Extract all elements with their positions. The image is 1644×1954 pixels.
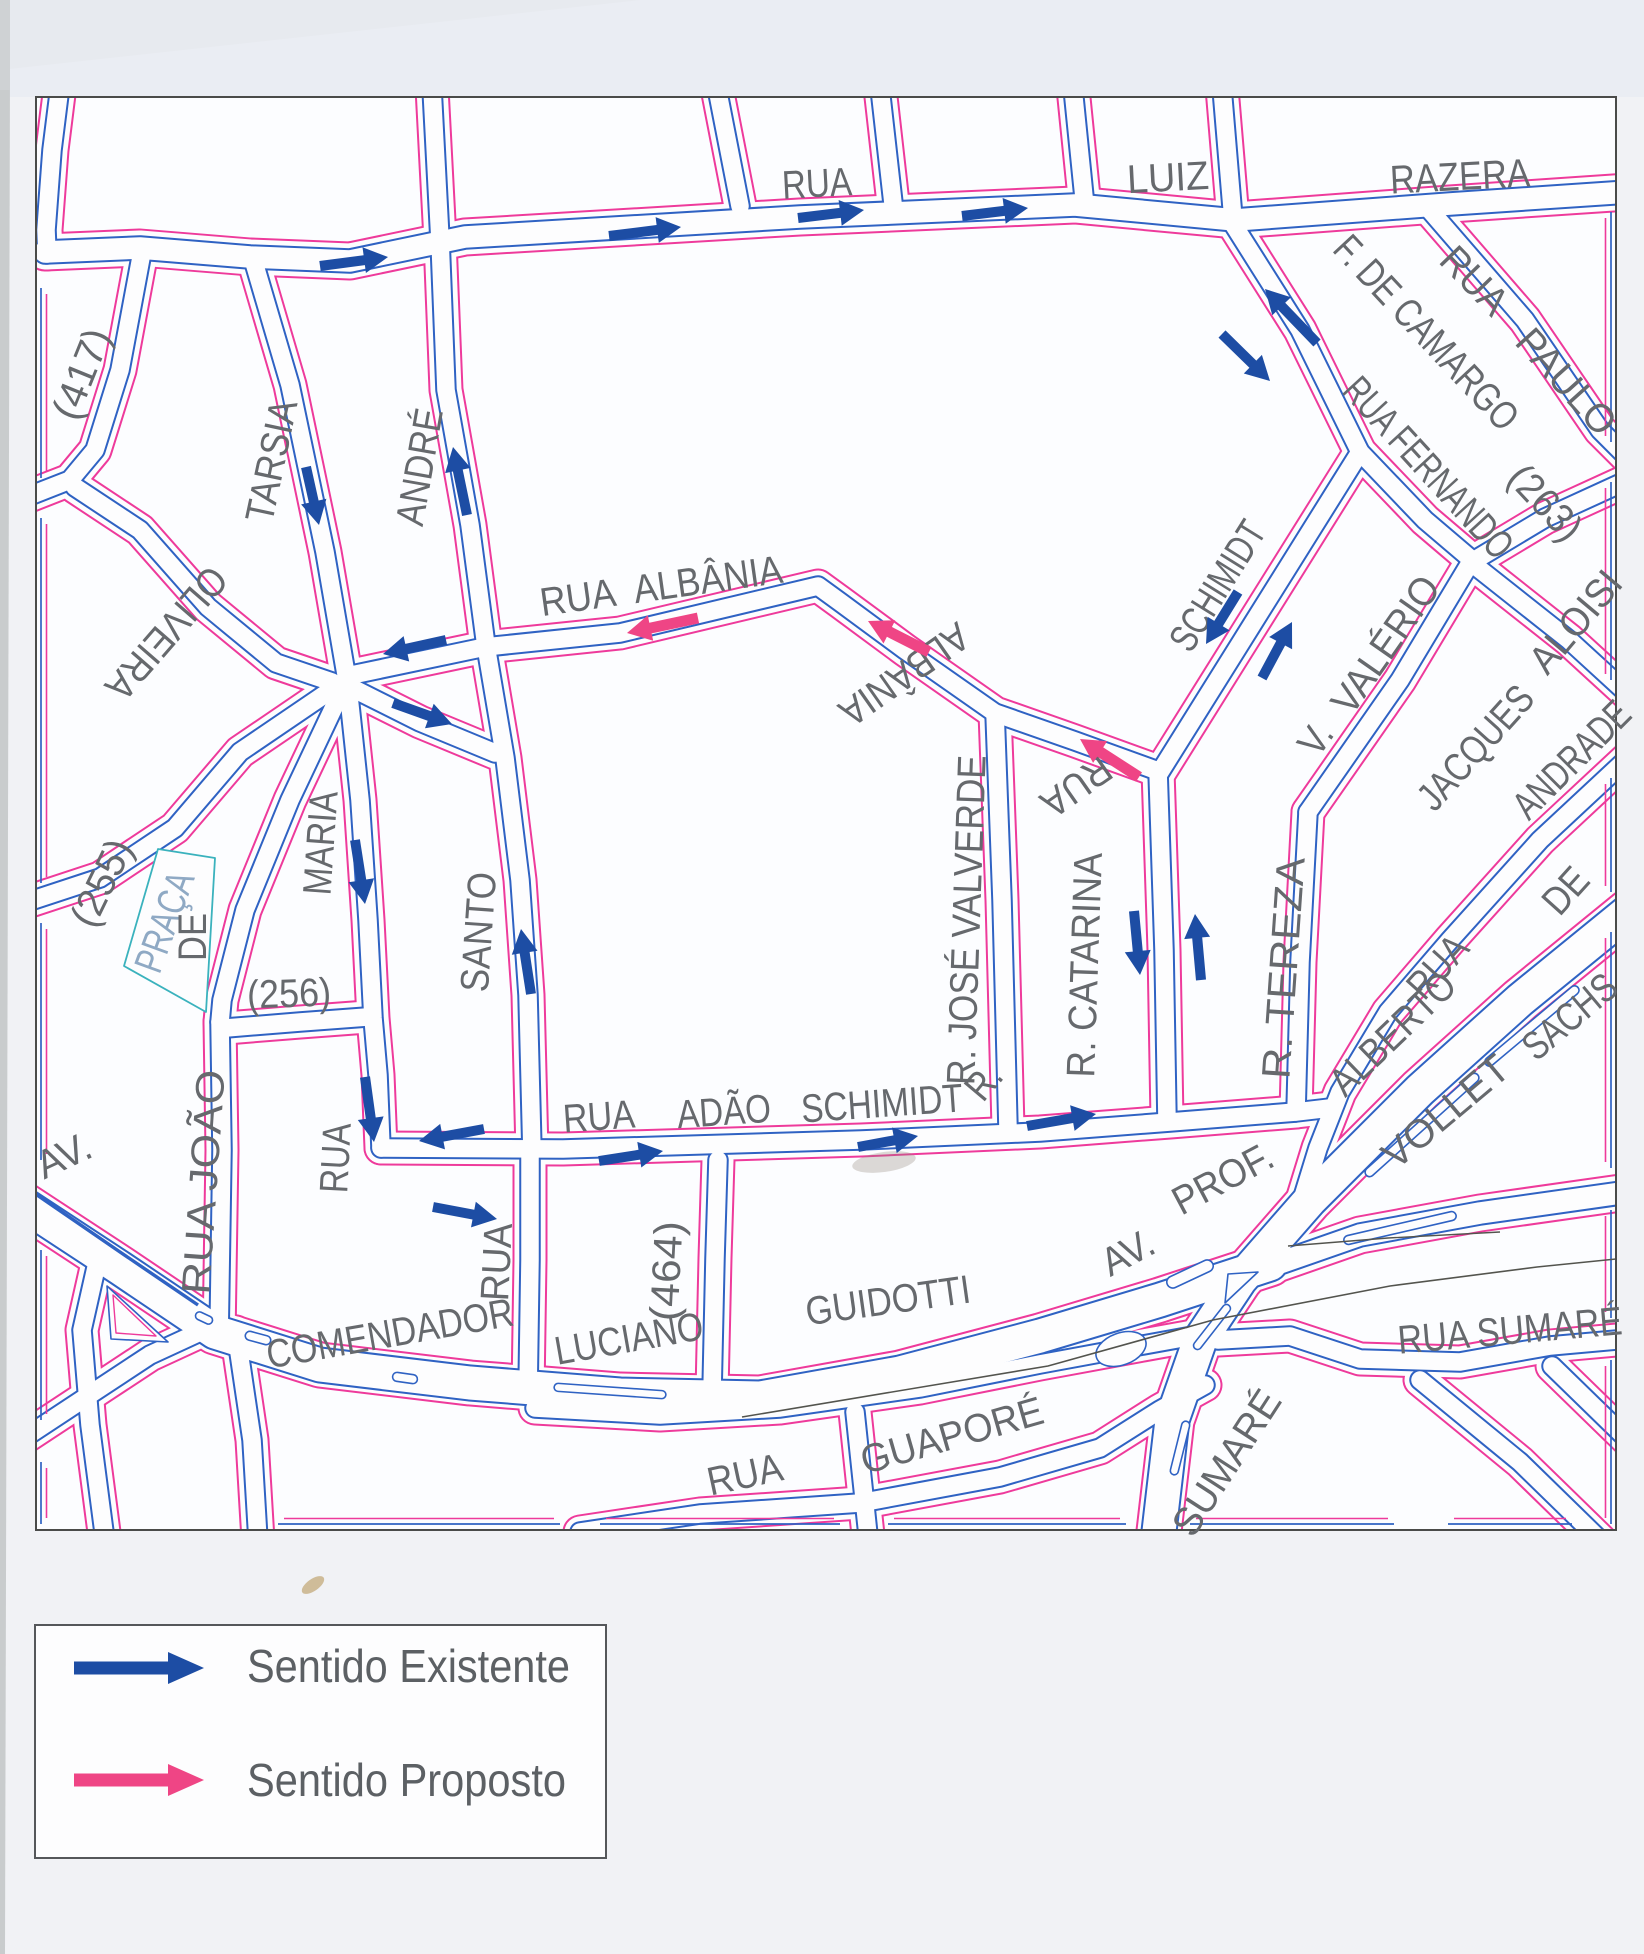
svg-text:RUA: RUA [473,1222,521,1302]
svg-text:(256): (256) [246,971,331,1018]
svg-text:Sentido Existente: Sentido Existente [247,1640,570,1692]
svg-text:SANTO: SANTO [453,871,505,994]
svg-text:RUA: RUA [312,1122,360,1194]
svg-text:RAZERA: RAZERA [1389,151,1531,202]
svg-text:DE: DE [171,913,215,961]
svg-text:ADÃO: ADÃO [676,1086,773,1137]
svg-text:Sentido Proposto: Sentido Proposto [247,1754,566,1806]
svg-text:MARIA: MARIA [295,789,346,896]
svg-text:LUIZ: LUIZ [1126,154,1210,202]
svg-text:(464): (464) [642,1220,691,1322]
svg-text:RUA: RUA [781,160,853,208]
svg-text:R. CATARINA: R. CATARINA [1059,852,1111,1079]
svg-text:RUA: RUA [562,1093,637,1142]
